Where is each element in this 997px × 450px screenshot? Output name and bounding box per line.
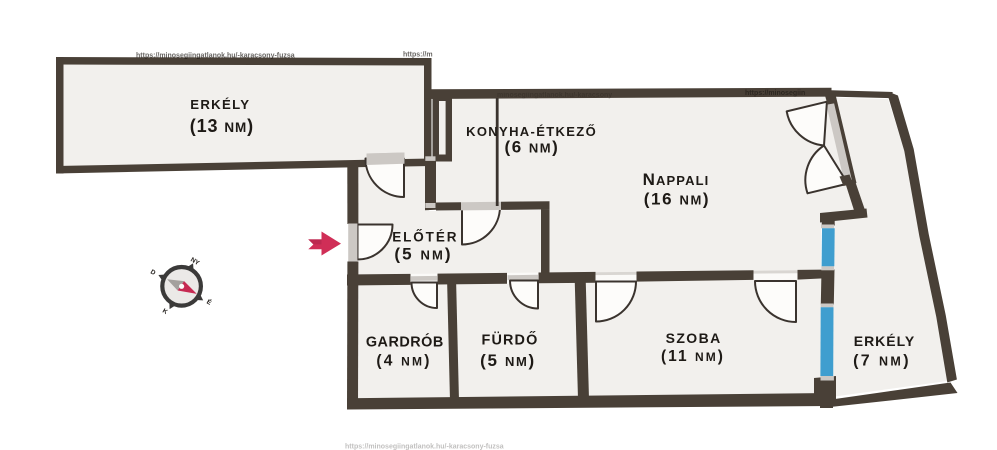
- svg-text:FÜRDŐ: FÜRDŐ: [482, 331, 539, 349]
- svg-text:(4 NM): (4 NM): [376, 353, 431, 370]
- svg-text:https://minosegiin: https://minosegiin: [745, 90, 805, 97]
- svg-text:SZOBA: SZOBA: [666, 330, 722, 346]
- svg-text:(6 NM): (6 NM): [505, 138, 560, 157]
- svg-text:(16 NM): (16 NM): [644, 190, 710, 209]
- svg-text:ERKÉLY: ERKÉLY: [190, 97, 250, 112]
- svg-text:(5 NM): (5 NM): [394, 245, 452, 264]
- svg-text:https://m: https://m: [403, 52, 433, 59]
- svg-text:(11 NM): (11 NM): [661, 348, 725, 365]
- svg-text:minosegiingatlanok.hu/-karacso: minosegiingatlanok.hu/-karacsony: [497, 92, 612, 99]
- svg-text:KONYHA-ÉTKEZŐ: KONYHA-ÉTKEZŐ: [466, 124, 597, 139]
- svg-text:ELŐTÉR: ELŐTÉR: [392, 230, 458, 245]
- svg-text:https://minosegiingatlanok.hu/: https://minosegiingatlanok.hu/-karacsony…: [136, 53, 295, 60]
- svg-text:NAPPALI: NAPPALI: [643, 170, 710, 189]
- svg-text:https://minosegiingatlanok.hu/: https://minosegiingatlanok.hu/-karacsony…: [345, 444, 504, 450]
- svg-text:ERKÉLY: ERKÉLY: [854, 333, 916, 349]
- svg-text:(7 NM): (7 NM): [853, 353, 911, 370]
- svg-text:GARDRÓB: GARDRÓB: [366, 333, 444, 351]
- svg-text:(5 NM): (5 NM): [480, 351, 536, 370]
